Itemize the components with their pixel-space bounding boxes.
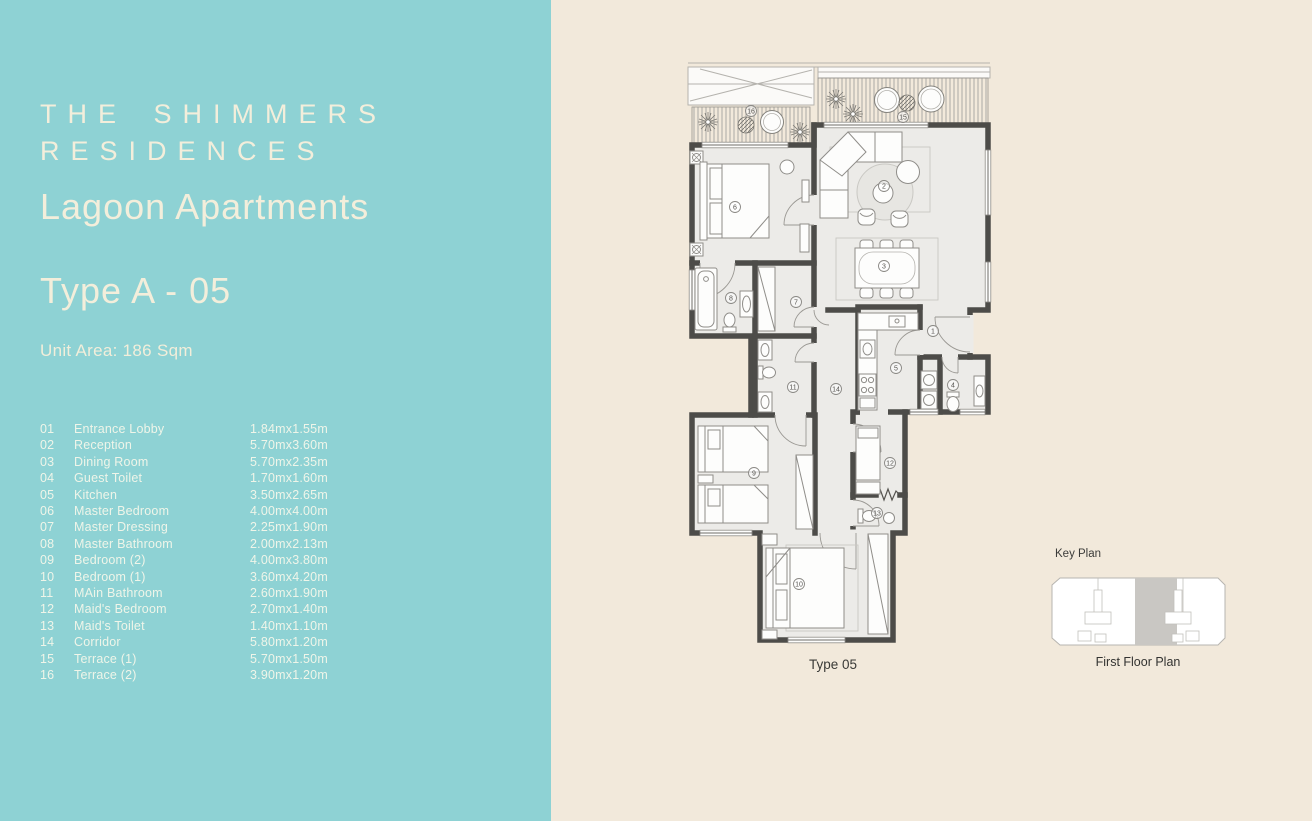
room-row: 16Terrace (2)3.90mx1.20m (40, 667, 551, 683)
room-row: 13Maid's Toilet1.40mx1.10m (40, 618, 551, 634)
room-dim: 5.80mx1.20m (250, 634, 551, 650)
room-row: 15Terrace (1)5.70mx1.50m (40, 651, 551, 667)
project-subtitle: Lagoon Apartments (40, 186, 551, 228)
room-no: 04 (40, 470, 74, 486)
info-panel: THE SHIMMERS RESIDENCES Lagoon Apartment… (0, 0, 551, 821)
room-no: 02 (40, 437, 74, 453)
svg-text:10: 10 (795, 582, 803, 589)
room-dim: 3.90mx1.20m (250, 667, 551, 683)
svg-text:6: 6 (733, 205, 737, 212)
key-plan-highlight (1135, 578, 1177, 645)
room-name: Terrace (1) (74, 651, 250, 667)
plan-caption: Type 05 (809, 657, 857, 672)
svg-text:1: 1 (931, 329, 935, 336)
room-dim: 4.00mx3.80m (250, 552, 551, 568)
room-name: Master Bedroom (74, 503, 250, 519)
room-no: 05 (40, 487, 74, 503)
room-row: 09Bedroom (2)4.00mx3.80m (40, 552, 551, 568)
tv-unit (802, 180, 809, 202)
room-no: 08 (40, 536, 74, 552)
floor-plan-drawing: 1 2 3 4 5 6 7 8 9 10 11 12 13 14 15 16 T… (551, 0, 1312, 821)
room-no: 16 (40, 667, 74, 683)
room-dim: 3.60mx4.20m (250, 569, 551, 585)
room-dim: 1.70mx1.60m (250, 470, 551, 486)
room-row: 10Bedroom (1)3.60mx4.20m (40, 569, 551, 585)
room-dim: 1.40mx1.10m (250, 618, 551, 634)
unit-type-title: Type A - 05 (40, 270, 551, 312)
room-dim: 5.70mx2.35m (250, 454, 551, 470)
side-table (780, 160, 794, 174)
room-dim: 2.00mx2.13m (250, 536, 551, 552)
room-no: 07 (40, 519, 74, 535)
key-plan: Key Plan First Floor Plan (1052, 548, 1225, 669)
room-row: 07Master Dressing2.25mx1.90m (40, 519, 551, 535)
room-name: MAin Bathroom (74, 585, 250, 601)
room-row: 08Master Bathroom2.00mx2.13m (40, 536, 551, 552)
room-no: 12 (40, 601, 74, 617)
room-row: 05Kitchen3.50mx2.65m (40, 487, 551, 503)
room-name: Terrace (2) (74, 667, 250, 683)
svg-text:14: 14 (832, 387, 840, 394)
svg-text:15: 15 (899, 115, 907, 122)
svg-text:3: 3 (882, 264, 886, 271)
brand-line-1: THE SHIMMERS (40, 96, 551, 133)
room-name: Kitchen (74, 487, 250, 503)
key-plan-caption: First Floor Plan (1096, 655, 1181, 669)
room-name: Guest Toilet (74, 470, 250, 486)
svg-text:2: 2 (882, 184, 886, 191)
room-no: 01 (40, 421, 74, 437)
room-name: Bedroom (2) (74, 552, 250, 568)
room-name: Entrance Lobby (74, 421, 250, 437)
svg-text:4: 4 (951, 383, 955, 390)
room-name: Dining Room (74, 454, 250, 470)
room-row: 06Master Bedroom4.00mx4.00m (40, 503, 551, 519)
room-no: 03 (40, 454, 74, 470)
room-no: 11 (40, 585, 74, 601)
room-no: 09 (40, 552, 74, 568)
room-no: 13 (40, 618, 74, 634)
dresser (800, 224, 809, 252)
room-dim: 4.00mx4.00m (250, 503, 551, 519)
brand-line-2: RESIDENCES (40, 133, 551, 170)
room-dim: 2.70mx1.40m (250, 601, 551, 617)
plan-panel: 1 2 3 4 5 6 7 8 9 10 11 12 13 14 15 16 T… (551, 0, 1312, 821)
bedroom1-furniture (762, 534, 888, 639)
unit-area-text: Unit Area: 186 Sqm (40, 341, 551, 361)
svg-text:16: 16 (747, 109, 755, 116)
brand-title: THE SHIMMERS RESIDENCES (40, 96, 551, 170)
room-name: Bedroom (1) (74, 569, 250, 585)
room-row: 14Corridor5.80mx1.20m (40, 634, 551, 650)
svg-text:13: 13 (873, 511, 881, 518)
room-row: 12Maid's Bedroom2.70mx1.40m (40, 601, 551, 617)
room-name: Maid's Bedroom (74, 601, 250, 617)
room-dim: 5.70mx3.60m (250, 437, 551, 453)
svg-text:12: 12 (886, 461, 894, 468)
room-dim: 5.70mx1.50m (250, 651, 551, 667)
dressing-wardrobe (758, 267, 775, 331)
room-name: Reception (74, 437, 250, 453)
room-no: 15 (40, 651, 74, 667)
svg-text:11: 11 (789, 385, 796, 392)
room-no: 10 (40, 569, 74, 585)
room-dim: 2.25mx1.90m (250, 519, 551, 535)
key-plan-title: Key Plan (1055, 548, 1101, 560)
room-row: 11MAin Bathroom2.60mx1.90m (40, 585, 551, 601)
room-row: 04Guest Toilet1.70mx1.60m (40, 470, 551, 486)
room-schedule: 01Entrance Lobby1.84mx1.55m02Reception5.… (40, 421, 551, 684)
room-name: Corridor (74, 634, 250, 650)
svg-text:5: 5 (894, 366, 898, 373)
svg-text:9: 9 (752, 471, 756, 478)
room-dim: 1.84mx1.55m (250, 421, 551, 437)
room-name: Maid's Toilet (74, 618, 250, 634)
room-no: 06 (40, 503, 74, 519)
room-name: Master Dressing (74, 519, 250, 535)
room-row: 02Reception5.70mx3.60m (40, 437, 551, 453)
brochure-page: THE SHIMMERS RESIDENCES Lagoon Apartment… (0, 0, 1312, 821)
svg-text:7: 7 (794, 300, 798, 307)
room-dim: 2.60mx1.90m (250, 585, 551, 601)
room-name: Master Bathroom (74, 536, 250, 552)
svg-text:8: 8 (729, 296, 733, 303)
room-row: 01Entrance Lobby1.84mx1.55m (40, 421, 551, 437)
room-row: 03Dining Room5.70mx2.35m (40, 454, 551, 470)
room-dim: 3.50mx2.65m (250, 487, 551, 503)
room-no: 14 (40, 634, 74, 650)
